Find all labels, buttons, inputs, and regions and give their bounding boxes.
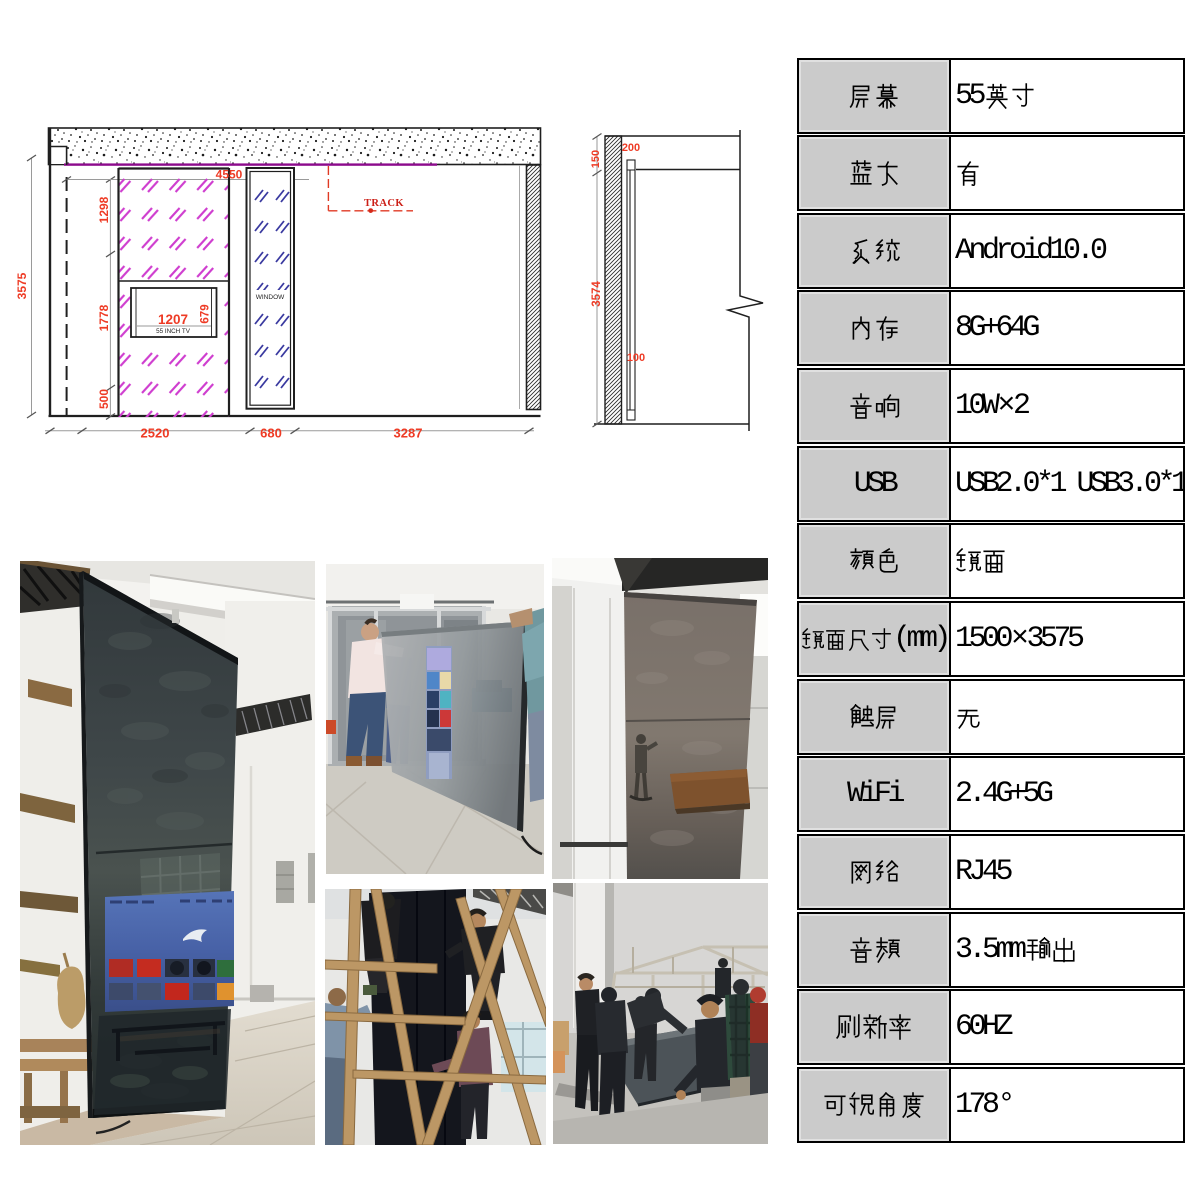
svg-text:3575: 3575 (15, 272, 29, 299)
svg-text:100: 100 (627, 352, 645, 364)
svg-text:3287: 3287 (394, 426, 423, 441)
svg-text:55 INCH TV: 55 INCH TV (156, 328, 191, 335)
svg-text:500: 500 (97, 389, 111, 409)
svg-text:200: 200 (622, 142, 640, 154)
svg-text:4550: 4550 (216, 168, 243, 182)
svg-text:680: 680 (260, 426, 282, 441)
svg-text:1298: 1298 (97, 196, 111, 223)
svg-text:1207: 1207 (158, 312, 188, 327)
svg-text:TRACK: TRACK (364, 198, 404, 209)
svg-text:WINDOW: WINDOW (256, 294, 285, 301)
svg-text:2520: 2520 (141, 426, 170, 441)
svg-text:1778: 1778 (97, 304, 111, 331)
svg-text:679: 679 (200, 304, 212, 323)
svg-text:150: 150 (590, 150, 602, 168)
svg-text:3574: 3574 (591, 281, 603, 307)
